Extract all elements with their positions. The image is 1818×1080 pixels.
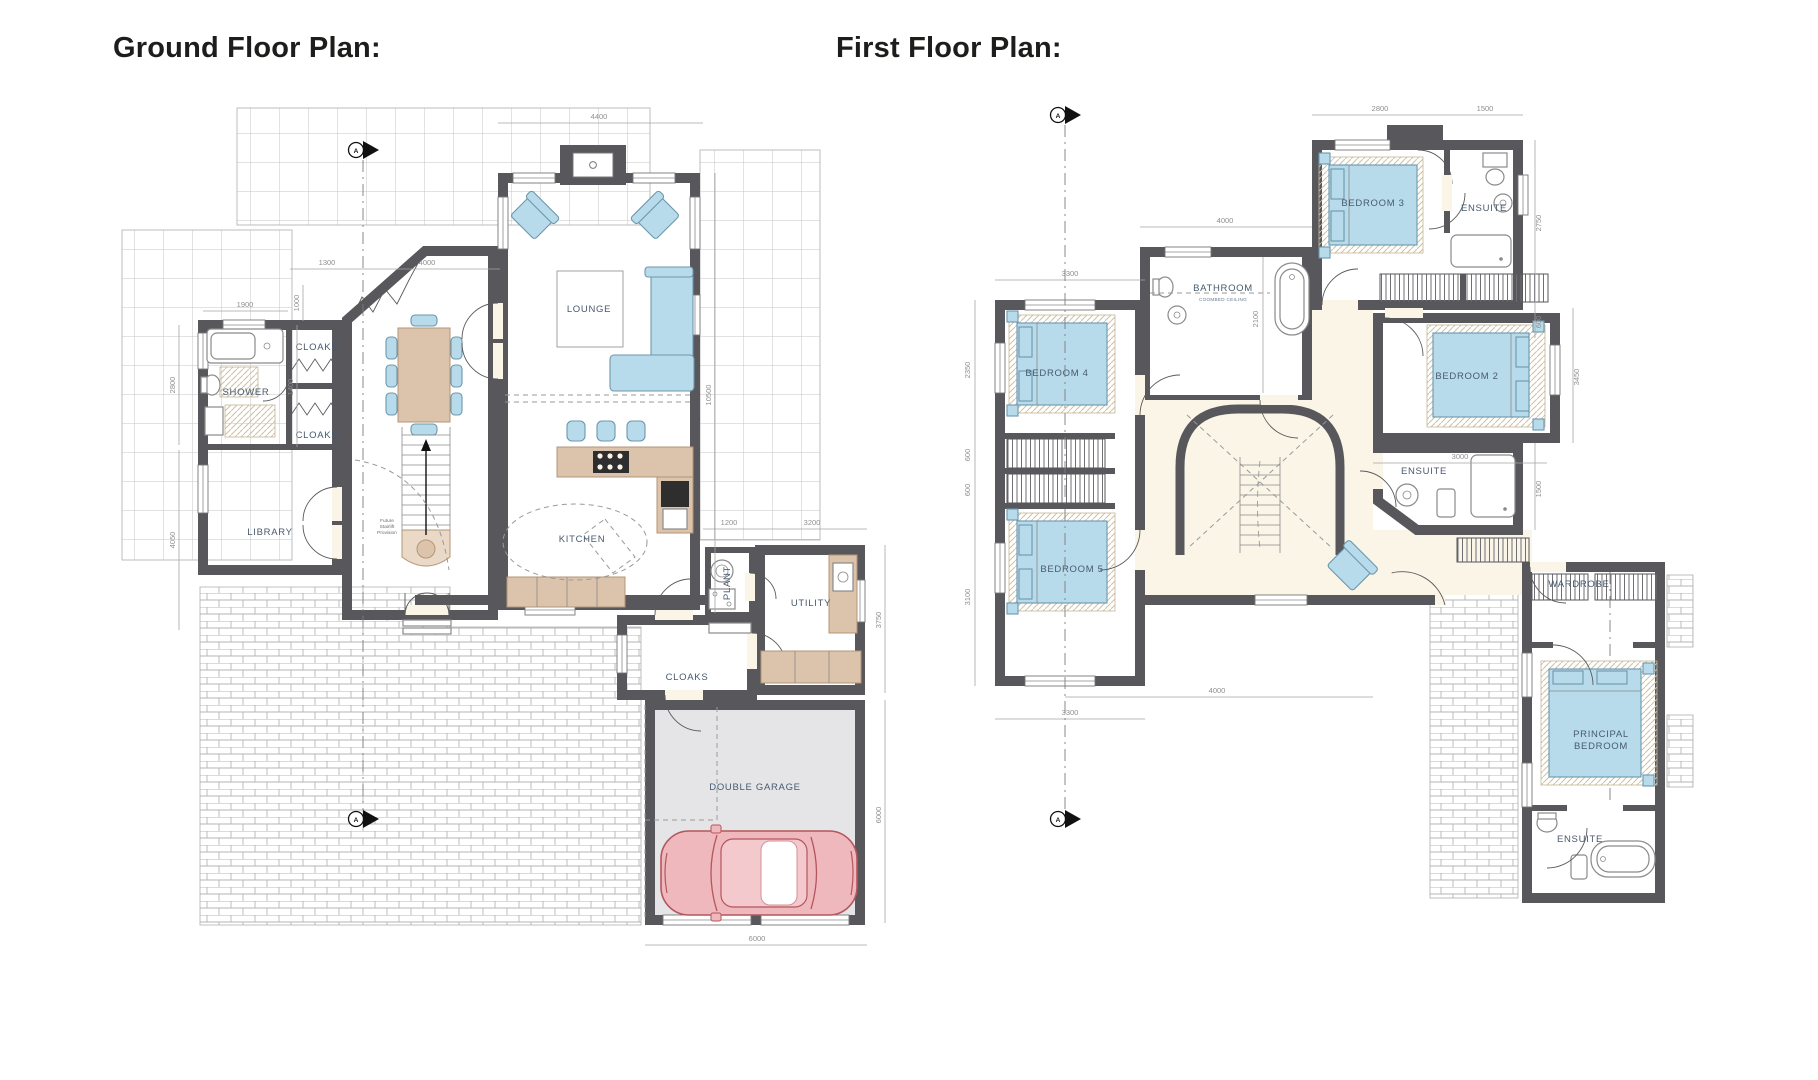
shower-label: SHOWER bbox=[223, 387, 270, 398]
svg-text:10500: 10500 bbox=[704, 385, 713, 406]
svg-text:4000: 4000 bbox=[1217, 216, 1234, 225]
svg-text:A: A bbox=[354, 817, 359, 824]
svg-text:6000: 6000 bbox=[749, 934, 766, 943]
ensuite-bottom-fixtures bbox=[1537, 813, 1655, 879]
lounge-label: LOUNGE bbox=[567, 304, 611, 315]
cloaks-top-label: CLOAKS bbox=[296, 342, 339, 353]
ground-floor-title: Ground Floor Plan: bbox=[113, 32, 381, 65]
ensuite-bottom-label: ENSUITE bbox=[1557, 834, 1603, 845]
svg-text:4000: 4000 bbox=[419, 258, 436, 267]
cloaks-mid-label: CLOAKS bbox=[296, 430, 339, 441]
svg-text:4400: 4400 bbox=[591, 112, 608, 121]
ground-floor-plan: Future Stairlift Provision bbox=[105, 75, 915, 965]
svg-text:3000: 3000 bbox=[1452, 452, 1469, 461]
ensuite-mid-label: ENSUITE bbox=[1401, 466, 1447, 477]
svg-text:1200: 1200 bbox=[721, 518, 738, 527]
svg-text:2100: 2100 bbox=[1251, 311, 1260, 328]
car bbox=[661, 825, 857, 921]
section-marker-top: A bbox=[1051, 106, 1082, 124]
kitchen-fittings bbox=[503, 421, 693, 607]
bedroom4-label: BEDROOM 4 bbox=[1025, 368, 1088, 379]
svg-text:3300: 3300 bbox=[1062, 708, 1079, 717]
svg-text:600: 600 bbox=[963, 449, 972, 462]
svg-text:2350: 2350 bbox=[963, 362, 972, 379]
ensuite-top-label: ENSUITE bbox=[1461, 203, 1507, 214]
bathroom-subtitle: COOMBED CEILING bbox=[1199, 297, 1247, 302]
bedroom2-label: BEDROOM 2 bbox=[1435, 371, 1498, 382]
wardrobe-label: WARDROBE bbox=[1548, 579, 1609, 590]
principal-bedroom-label-1: PRINCIPAL bbox=[1573, 729, 1629, 740]
svg-text:1500: 1500 bbox=[1534, 481, 1543, 498]
svg-text:1400: 1400 bbox=[286, 379, 295, 396]
library-label: LIBRARY bbox=[247, 527, 292, 538]
svg-text:A: A bbox=[354, 148, 359, 155]
bedroom5-label: BEDROOM 5 bbox=[1040, 564, 1103, 575]
ensuite-mid-fixtures bbox=[1396, 455, 1515, 517]
svg-text:1900: 1900 bbox=[237, 300, 254, 309]
garage-label: DOUBLE GARAGE bbox=[709, 782, 800, 793]
principal-bed-furniture bbox=[1541, 661, 1657, 786]
svg-text:1300: 1300 bbox=[319, 258, 336, 267]
bedroom4-furniture bbox=[1007, 311, 1115, 416]
utility-label: UTILITY bbox=[791, 598, 831, 609]
principal-bedroom-label-2: BEDROOM bbox=[1574, 741, 1628, 752]
plant-label: PLANT bbox=[722, 566, 733, 600]
bedroom5-furniture bbox=[1007, 509, 1115, 614]
svg-text:Future: Future bbox=[380, 518, 394, 524]
svg-text:Provision: Provision bbox=[377, 530, 397, 536]
patio-brick-paving bbox=[200, 587, 641, 925]
kitchen-label: KITCHEN bbox=[559, 534, 606, 545]
bedroom3-label: BEDROOM 3 bbox=[1341, 198, 1404, 209]
bathroom-label: BATHROOM bbox=[1193, 283, 1253, 294]
svg-text:600: 600 bbox=[1534, 316, 1543, 329]
svg-text:A: A bbox=[1056, 113, 1061, 120]
first-floor-title: First Floor Plan: bbox=[836, 32, 1062, 65]
ceiling-break-lines bbox=[505, 395, 693, 402]
svg-text:2800: 2800 bbox=[1372, 104, 1389, 113]
svg-text:3200: 3200 bbox=[804, 518, 821, 527]
svg-text:A: A bbox=[1056, 817, 1061, 824]
stair-void bbox=[1180, 409, 1340, 555]
svg-text:2800: 2800 bbox=[168, 377, 177, 394]
svg-text:2750: 2750 bbox=[1534, 215, 1543, 232]
first-floor-plan: BEDROOM 3 ENSUITE BATHROOM COOMBED CEILI… bbox=[835, 75, 1705, 965]
svg-text:600: 600 bbox=[963, 484, 972, 497]
cloaks-rear-label: CLOAKS bbox=[666, 672, 709, 683]
stairlift-note: Future Stairlift Provision bbox=[377, 518, 397, 536]
svg-text:3300: 3300 bbox=[1062, 269, 1079, 278]
dining-set bbox=[386, 315, 462, 435]
floor-plans-page: Ground Floor Plan: First Floor Plan: bbox=[0, 0, 1818, 1080]
svg-text:4050: 4050 bbox=[168, 532, 177, 549]
svg-text:1000: 1000 bbox=[292, 295, 301, 312]
section-marker-bottom: A bbox=[1051, 810, 1082, 828]
svg-text:Stairlift: Stairlift bbox=[380, 524, 395, 530]
bar-stools bbox=[567, 421, 645, 441]
staircase bbox=[355, 427, 450, 570]
svg-text:3450: 3450 bbox=[1572, 369, 1581, 386]
svg-text:4000: 4000 bbox=[1209, 686, 1226, 695]
svg-text:1500: 1500 bbox=[1477, 104, 1494, 113]
svg-text:3100: 3100 bbox=[963, 589, 972, 606]
